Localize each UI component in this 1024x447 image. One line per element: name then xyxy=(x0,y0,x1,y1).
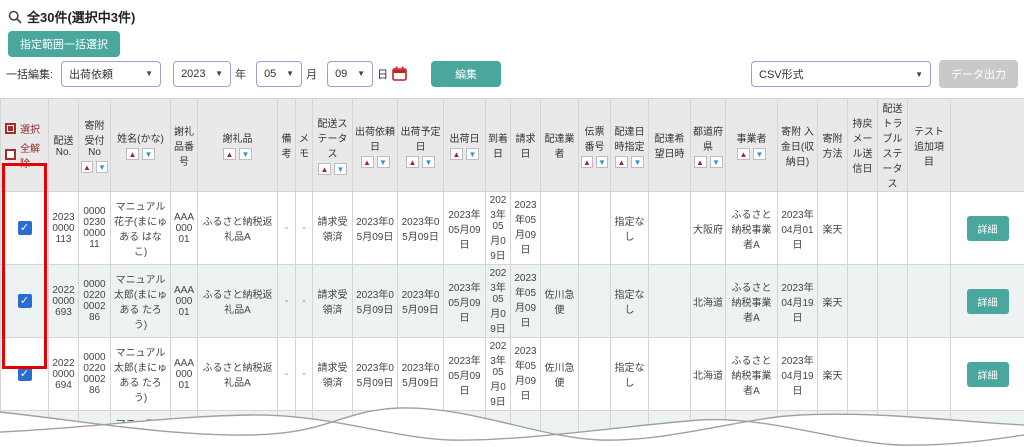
cell: 2023年0 xyxy=(778,411,818,447)
col-header-23: 配送トラブルステータス xyxy=(878,99,908,192)
cell xyxy=(848,192,878,265)
cell xyxy=(579,265,611,338)
checkbox-filled-icon xyxy=(5,123,16,134)
cell: 2023年04月01日 xyxy=(778,192,818,265)
table-row: 2022000069000002200002マニュアル 太郎(まにゅある たろう… xyxy=(1,411,1024,447)
cell: ふるさと納税返礼品A xyxy=(198,411,278,447)
cell: - xyxy=(296,192,313,265)
row-checkbox[interactable] xyxy=(18,436,32,447)
select-all-label: 選択 xyxy=(20,121,40,136)
cell: - xyxy=(278,338,296,411)
cell: 楽天 xyxy=(818,338,848,411)
col-header-label: 配達希望日時 xyxy=(655,134,685,160)
select-all-button[interactable]: 選択 xyxy=(5,121,44,136)
cell: 2023年05月09日 xyxy=(444,265,486,338)
col-header-label: 寄附受付No xyxy=(85,121,105,158)
detail-button[interactable]: 詳細 xyxy=(967,216,1009,241)
cell xyxy=(541,192,579,265)
export-button[interactable]: データ出力 xyxy=(939,60,1018,88)
sort-desc-icon[interactable]: ▼ xyxy=(422,156,435,168)
col-header-label: 出荷予定日 xyxy=(401,127,441,153)
col-header-11: 出荷日▲▼ xyxy=(444,99,486,192)
sort-desc-icon[interactable]: ▼ xyxy=(239,148,252,160)
chevron-down-icon: ▼ xyxy=(286,69,294,78)
month-select[interactable]: 05 ▼ xyxy=(256,61,302,87)
cell: ふるさと納税返礼品A xyxy=(198,192,278,265)
cell: 2023年05月09日 xyxy=(486,192,511,265)
cell xyxy=(579,192,611,265)
cell xyxy=(511,411,541,447)
bulk-edit-label: 一括編集: xyxy=(6,66,53,82)
year-unit-label: 年 xyxy=(235,66,246,82)
cell: 00000220000286 xyxy=(79,338,111,411)
cell: 20220000693 xyxy=(49,265,79,338)
export-group: CSV形式 ▼ データ出力 xyxy=(751,60,1018,88)
checkbox-empty-icon xyxy=(5,149,16,160)
cell xyxy=(908,265,951,338)
cell: 2023年05月09日 xyxy=(353,338,398,411)
cell: 北海道 xyxy=(691,338,726,411)
col-header-label: 備考 xyxy=(282,134,292,160)
cell: 指定なし xyxy=(611,192,649,265)
row-checkbox[interactable] xyxy=(18,294,32,308)
cell: 2023年05月09日 xyxy=(444,192,486,265)
sort-asc-icon[interactable]: ▲ xyxy=(694,156,707,168)
table-row: 2022000069300000220000286マニュアル 太郎(まにゅある … xyxy=(1,265,1024,338)
col-header-label: 出荷日 xyxy=(450,134,480,145)
day-select[interactable]: 09 ▼ xyxy=(327,61,373,87)
col-header-9: 出荷依頼日▲▼ xyxy=(353,99,398,192)
col-header-label: テスト追加項目 xyxy=(914,127,944,168)
chevron-down-icon: ▼ xyxy=(915,70,923,79)
cell: 2023年05月09日 xyxy=(444,338,486,411)
deselect-all-button[interactable]: 全解除 xyxy=(5,140,44,170)
cell xyxy=(579,338,611,411)
col-header-13: 請求日 xyxy=(511,99,541,192)
cell xyxy=(353,411,398,447)
col-header-15: 伝票番号▲▼ xyxy=(579,99,611,192)
col-header-10: 出荷予定日▲▼ xyxy=(398,99,444,192)
cell: 指定なし xyxy=(611,338,649,411)
cell: AAA00001 xyxy=(171,192,198,265)
chevron-down-icon: ▼ xyxy=(145,69,153,78)
cell xyxy=(486,411,511,447)
edit-button[interactable]: 編集 xyxy=(431,61,501,87)
cell-select xyxy=(1,265,49,338)
sort-asc-icon[interactable]: ▲ xyxy=(318,163,331,175)
sort-desc-icon[interactable]: ▼ xyxy=(334,163,347,175)
cell: - xyxy=(296,265,313,338)
cell: 佐川急便 xyxy=(541,411,579,447)
col-header-label: 配送トラブルステータス xyxy=(883,104,903,190)
search-icon xyxy=(8,10,22,24)
cell: 2023年05月09日 xyxy=(511,192,541,265)
cell xyxy=(878,411,908,447)
sort-asc-icon[interactable]: ▲ xyxy=(81,161,93,173)
cell: AAA00001 xyxy=(171,338,198,411)
cell-select xyxy=(1,338,49,411)
table-row: 2022000069400000220000286マニュアル 太郎(まにゅある … xyxy=(1,338,1024,411)
col-header-12: 到着日 xyxy=(486,99,511,192)
page-title: 全30件(選択中3件) xyxy=(27,7,135,26)
col-header-14: 配達業者 xyxy=(541,99,579,192)
cell: - xyxy=(296,411,313,447)
cell xyxy=(878,265,908,338)
detail-button[interactable]: 詳細 xyxy=(967,289,1009,314)
cell: 指定なし xyxy=(611,265,649,338)
sort-asc-icon[interactable]: ▲ xyxy=(361,156,374,168)
cell: 2023年04月19日 xyxy=(778,265,818,338)
col-header-label: 配達日時指定 xyxy=(615,127,645,153)
cell: - xyxy=(278,411,296,447)
cell: 北海道 xyxy=(691,265,726,338)
cell: 請求受領済 xyxy=(313,265,353,338)
cell: 2023年05月09日 xyxy=(353,265,398,338)
cell xyxy=(908,411,951,447)
col-header-20: 寄附 入金日(収納日) xyxy=(778,99,818,192)
cell: 2023年05月09日 xyxy=(511,265,541,338)
cell: マニュアル 太郎(まにゅある たろう) xyxy=(111,338,171,411)
bulk-action-select[interactable]: 出荷依頼 ▼ xyxy=(61,61,161,87)
sort-asc-icon[interactable]: ▲ xyxy=(615,156,628,168)
col-header-label: 寄附方法 xyxy=(823,134,843,160)
sort-asc-icon[interactable]: ▲ xyxy=(406,156,419,168)
export-format-value: CSV形式 xyxy=(759,66,804,82)
cell: 請求受領済 xyxy=(313,192,353,265)
sort-asc-icon[interactable]: ▲ xyxy=(737,148,750,160)
cell-actions: 詳細 xyxy=(951,411,1024,447)
sort-desc-icon[interactable]: ▼ xyxy=(466,148,479,160)
calendar-icon[interactable] xyxy=(392,66,407,81)
cell-actions: 詳細 xyxy=(951,192,1024,265)
col-header-label: 出荷依頼日 xyxy=(355,127,395,153)
cell: 00000220000286 xyxy=(79,265,111,338)
cell: 2023年05月09日 xyxy=(398,338,444,411)
cell xyxy=(908,338,951,411)
cell: 2023年04月19日 xyxy=(778,338,818,411)
cell: ふるさと納税事業者A xyxy=(726,411,778,447)
cell xyxy=(398,411,444,447)
cell xyxy=(878,192,908,265)
cell xyxy=(579,411,611,447)
table-row: 2023000011300000230000011マニュアル 花子(まにゅある … xyxy=(1,192,1024,265)
year-select[interactable]: 2023 ▼ xyxy=(173,61,231,87)
col-header-label: 持戻メール送信日 xyxy=(853,119,873,175)
cell: 請求受領済 xyxy=(313,338,353,411)
data-grid: 選択全解除配送No.寄附受付No▲▼姓名(かな)▲▼謝礼品番号謝礼品▲▼備考メモ… xyxy=(0,98,1024,447)
cell-select xyxy=(1,192,49,265)
sort-asc-icon[interactable]: ▲ xyxy=(223,148,236,160)
col-header-24: テスト追加項目 xyxy=(908,99,951,192)
cell-actions: 詳細 xyxy=(951,338,1024,411)
cell: 佐川急便 xyxy=(541,265,579,338)
col-header-label: 都道府県 xyxy=(693,127,723,153)
sort-desc-icon[interactable]: ▼ xyxy=(631,156,644,168)
chevron-down-icon: ▼ xyxy=(215,69,223,78)
select-column-header: 選択全解除 xyxy=(1,99,49,192)
col-header-6: 備考 xyxy=(278,99,296,192)
col-header-7: メモ xyxy=(296,99,313,192)
bulk-action-value: 出荷依頼 xyxy=(69,66,113,82)
col-header-label: 事業者 xyxy=(737,134,767,145)
cell xyxy=(878,338,908,411)
header-row: 選択全解除配送No.寄附受付No▲▼姓名(かな)▲▼謝礼品番号謝礼品▲▼備考メモ… xyxy=(1,99,1024,192)
col-header-label: 請求日 xyxy=(516,134,536,160)
cell: 2023年05月09日 xyxy=(511,338,541,411)
sort-desc-icon[interactable]: ▼ xyxy=(710,156,723,168)
col-header-label: 伝票番号 xyxy=(585,127,605,153)
sort-asc-icon[interactable]: ▲ xyxy=(450,148,463,160)
col-header-label: メモ xyxy=(299,134,309,160)
sort-asc-icon[interactable]: ▲ xyxy=(581,156,593,168)
cell: ふるさと納税返礼品A xyxy=(198,338,278,411)
cell: 20220000694 xyxy=(49,338,79,411)
col-header-4: 謝礼品番号 xyxy=(171,99,198,192)
col-header-5: 謝礼品▲▼ xyxy=(198,99,278,192)
cell: 佐川急便 xyxy=(541,338,579,411)
cell: - xyxy=(278,265,296,338)
cell: マニュアル 花子(まにゅある はなこ) xyxy=(111,192,171,265)
col-header-2: 寄附受付No▲▼ xyxy=(79,99,111,192)
cell xyxy=(908,192,951,265)
cell: ふるさと納税事業者A xyxy=(726,192,778,265)
cell: 00000230000011 xyxy=(79,192,111,265)
row-checkbox[interactable] xyxy=(18,221,32,235)
cell: マニュアル 太郎(まにゅある たろう) xyxy=(111,411,171,447)
cell xyxy=(848,338,878,411)
cell xyxy=(848,411,878,447)
cell xyxy=(649,265,691,338)
cell: ふるさと納税事業者A xyxy=(726,265,778,338)
cell: マニュアル 太郎(まにゅある たろう) xyxy=(111,265,171,338)
cell xyxy=(649,338,691,411)
cell: 2023年05月09日 xyxy=(398,192,444,265)
deselect-all-label: 全解除 xyxy=(20,140,44,170)
export-format-select[interactable]: CSV形式 ▼ xyxy=(751,61,931,87)
cell: 配達日時指定 xyxy=(611,411,649,447)
range-select-button[interactable]: 指定範囲一括選択 xyxy=(8,31,120,57)
col-header-label: 謝礼品 xyxy=(223,134,253,145)
cell xyxy=(649,411,691,447)
col-header-label: 配達業者 xyxy=(545,134,575,160)
cell: - xyxy=(278,192,296,265)
col-header-label: 謝礼品番号 xyxy=(174,127,194,168)
cell-select xyxy=(1,411,49,447)
cell xyxy=(444,411,486,447)
day-value: 09 xyxy=(335,68,347,80)
month-unit-label: 月 xyxy=(306,66,317,82)
detail-button[interactable]: 詳細 xyxy=(967,362,1009,387)
col-header-label: 寄附 入金日(収納日) xyxy=(781,127,814,168)
sort-desc-icon[interactable]: ▼ xyxy=(96,161,108,173)
col-header-label: 到着日 xyxy=(488,134,508,160)
sort-desc-icon[interactable]: ▼ xyxy=(377,156,390,168)
col-header-21: 寄附方法 xyxy=(818,99,848,192)
cell: 2023年05月09日 xyxy=(398,265,444,338)
cell: 楽天 xyxy=(818,192,848,265)
sort-desc-icon[interactable]: ▼ xyxy=(142,148,155,160)
col-header-label: 姓名(かな) xyxy=(117,134,164,145)
cell: 2023年05月09日 xyxy=(486,338,511,411)
day-unit-label: 日 xyxy=(377,66,388,82)
col-header-label: 配送No. xyxy=(54,136,74,158)
col-header-8: 配送ステータス▲▼ xyxy=(313,99,353,192)
cell: 2023年05月09日 xyxy=(353,192,398,265)
col-header-16: 配達日時指定▲▼ xyxy=(611,99,649,192)
cell xyxy=(848,265,878,338)
month-value: 05 xyxy=(264,68,276,80)
cell: 2022000069 xyxy=(49,411,79,447)
cell: 大阪府 xyxy=(691,192,726,265)
cell: 2023年05月09日 xyxy=(486,265,511,338)
sort-asc-icon[interactable]: ▲ xyxy=(126,148,139,160)
row-checkbox[interactable] xyxy=(18,367,32,381)
actions-column-header xyxy=(951,99,1024,192)
col-header-22: 持戻メール送信日 xyxy=(848,99,878,192)
grid-wrap: 選択全解除配送No.寄附受付No▲▼姓名(かな)▲▼謝礼品番号謝礼品▲▼備考メモ… xyxy=(0,98,1024,447)
cell xyxy=(649,192,691,265)
sort-desc-icon[interactable]: ▼ xyxy=(753,148,766,160)
sort-desc-icon[interactable]: ▼ xyxy=(596,156,608,168)
col-header-19: 事業者▲▼ xyxy=(726,99,778,192)
cell: - xyxy=(296,338,313,411)
cell: ふるさと納税事業者A xyxy=(726,338,778,411)
bulk-edit-row: 一括編集: 出荷依頼 ▼ 2023 ▼ 年 05 ▼ 月 09 ▼ 日 編集 xyxy=(6,60,501,87)
cell: 楽天 xyxy=(818,265,848,338)
col-header-18: 都道府県▲▼ xyxy=(691,99,726,192)
cell: AAA00001 xyxy=(171,265,198,338)
cell: ふるさと納税返礼品A xyxy=(198,265,278,338)
page-title-row: 全30件(選択中3件) xyxy=(8,7,135,26)
cell: 北海道 xyxy=(691,411,726,447)
cell: 20230000113 xyxy=(49,192,79,265)
chevron-down-icon: ▼ xyxy=(357,69,365,78)
col-header-17: 配達希望日時 xyxy=(649,99,691,192)
year-value: 2023 xyxy=(181,68,205,80)
cell: 未発注 xyxy=(313,411,353,447)
detail-button[interactable]: 詳細 xyxy=(967,432,1009,447)
cell-actions: 詳細 xyxy=(951,265,1024,338)
cell: 000002200002 xyxy=(79,411,111,447)
col-header-label: 配送ステータス xyxy=(318,119,348,160)
cell: 楽天 xyxy=(818,411,848,447)
col-header-3: 姓名(かな)▲▼ xyxy=(111,99,171,192)
cell: AAA00001 xyxy=(171,411,198,447)
col-header-1: 配送No. xyxy=(49,99,79,192)
